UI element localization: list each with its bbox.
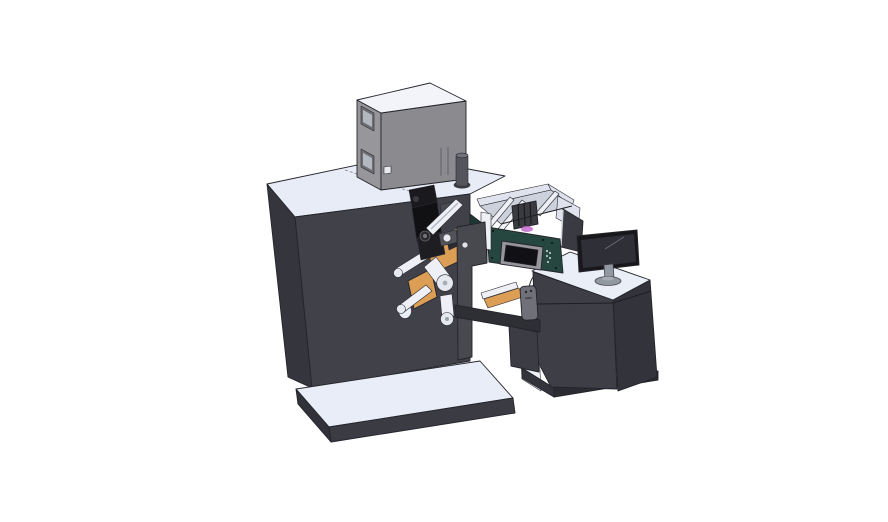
cad-render-viewport	[0, 0, 888, 522]
label-glow-magenta	[521, 226, 533, 232]
pendant-body[interactable]	[520, 285, 538, 320]
plate-knob	[462, 242, 468, 248]
stub-roller-hub	[445, 317, 449, 321]
support-leg	[509, 326, 539, 372]
hopper-foot-detail	[384, 166, 391, 174]
vent-cylinder-body	[456, 155, 468, 186]
mech-pivot	[413, 196, 419, 202]
guide-roller-low-cap	[397, 305, 406, 314]
hopper-front-face	[381, 101, 466, 190]
guide-roller-mid-cap	[394, 269, 403, 278]
rewind-roller-hub	[443, 281, 448, 286]
monitor-screen[interactable]	[581, 234, 636, 268]
plate-face	[457, 222, 487, 360]
hopper-box	[357, 83, 466, 190]
cad-scene	[0, 0, 888, 522]
mech-knob-center	[423, 234, 427, 238]
vent-cylinder-cap	[456, 153, 468, 158]
mech-knob-white	[443, 234, 451, 242]
operator-desk	[532, 252, 657, 391]
web-path-plate	[457, 222, 487, 360]
vent-cylinder	[454, 153, 470, 188]
pendant-button-1[interactable]	[525, 291, 527, 293]
pendant-button-2[interactable]	[530, 290, 532, 292]
monitor-base-top	[602, 277, 614, 281]
